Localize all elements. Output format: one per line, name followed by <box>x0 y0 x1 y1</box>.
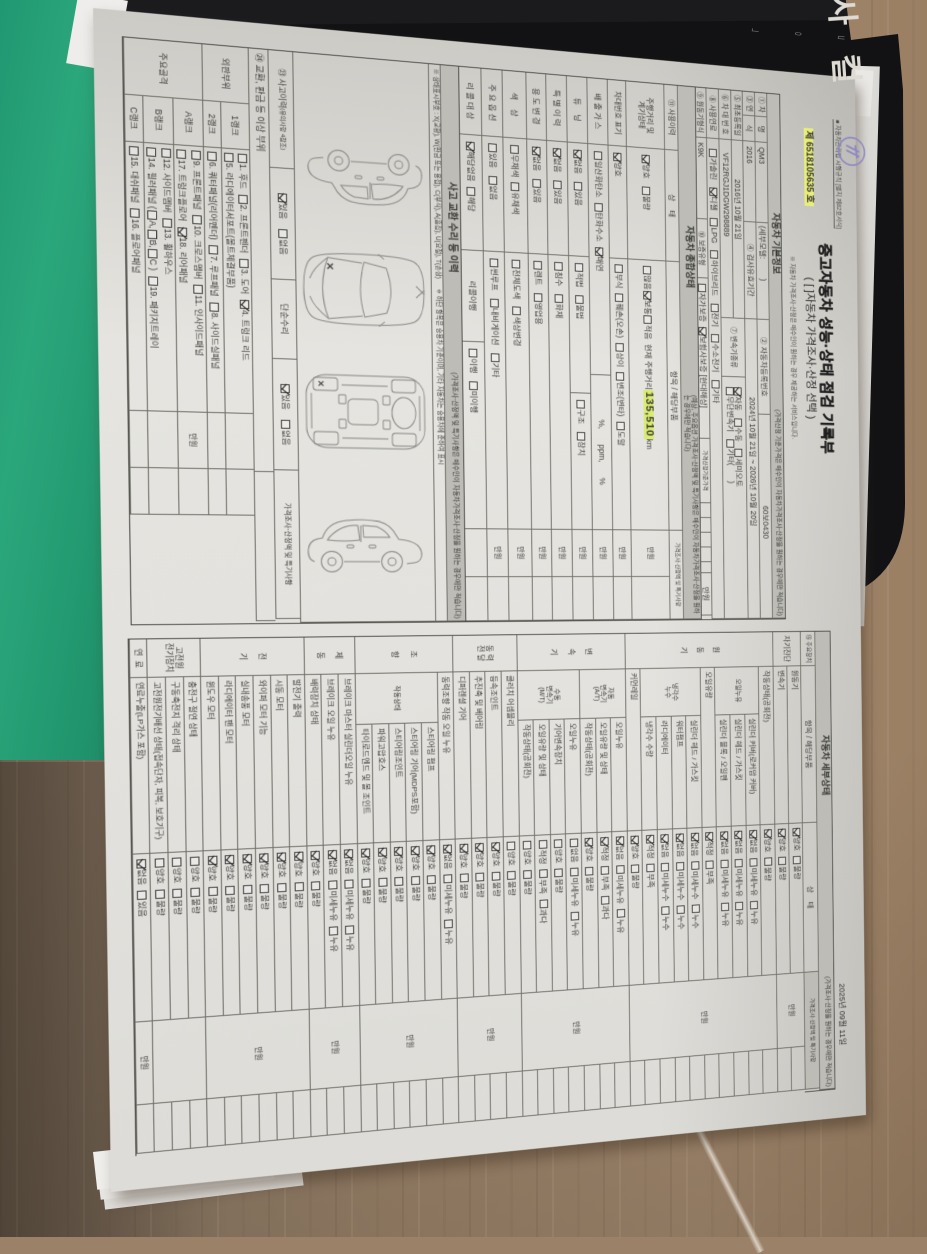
svg-text:×: × <box>323 262 338 270</box>
svg-text:×: × <box>314 380 326 387</box>
